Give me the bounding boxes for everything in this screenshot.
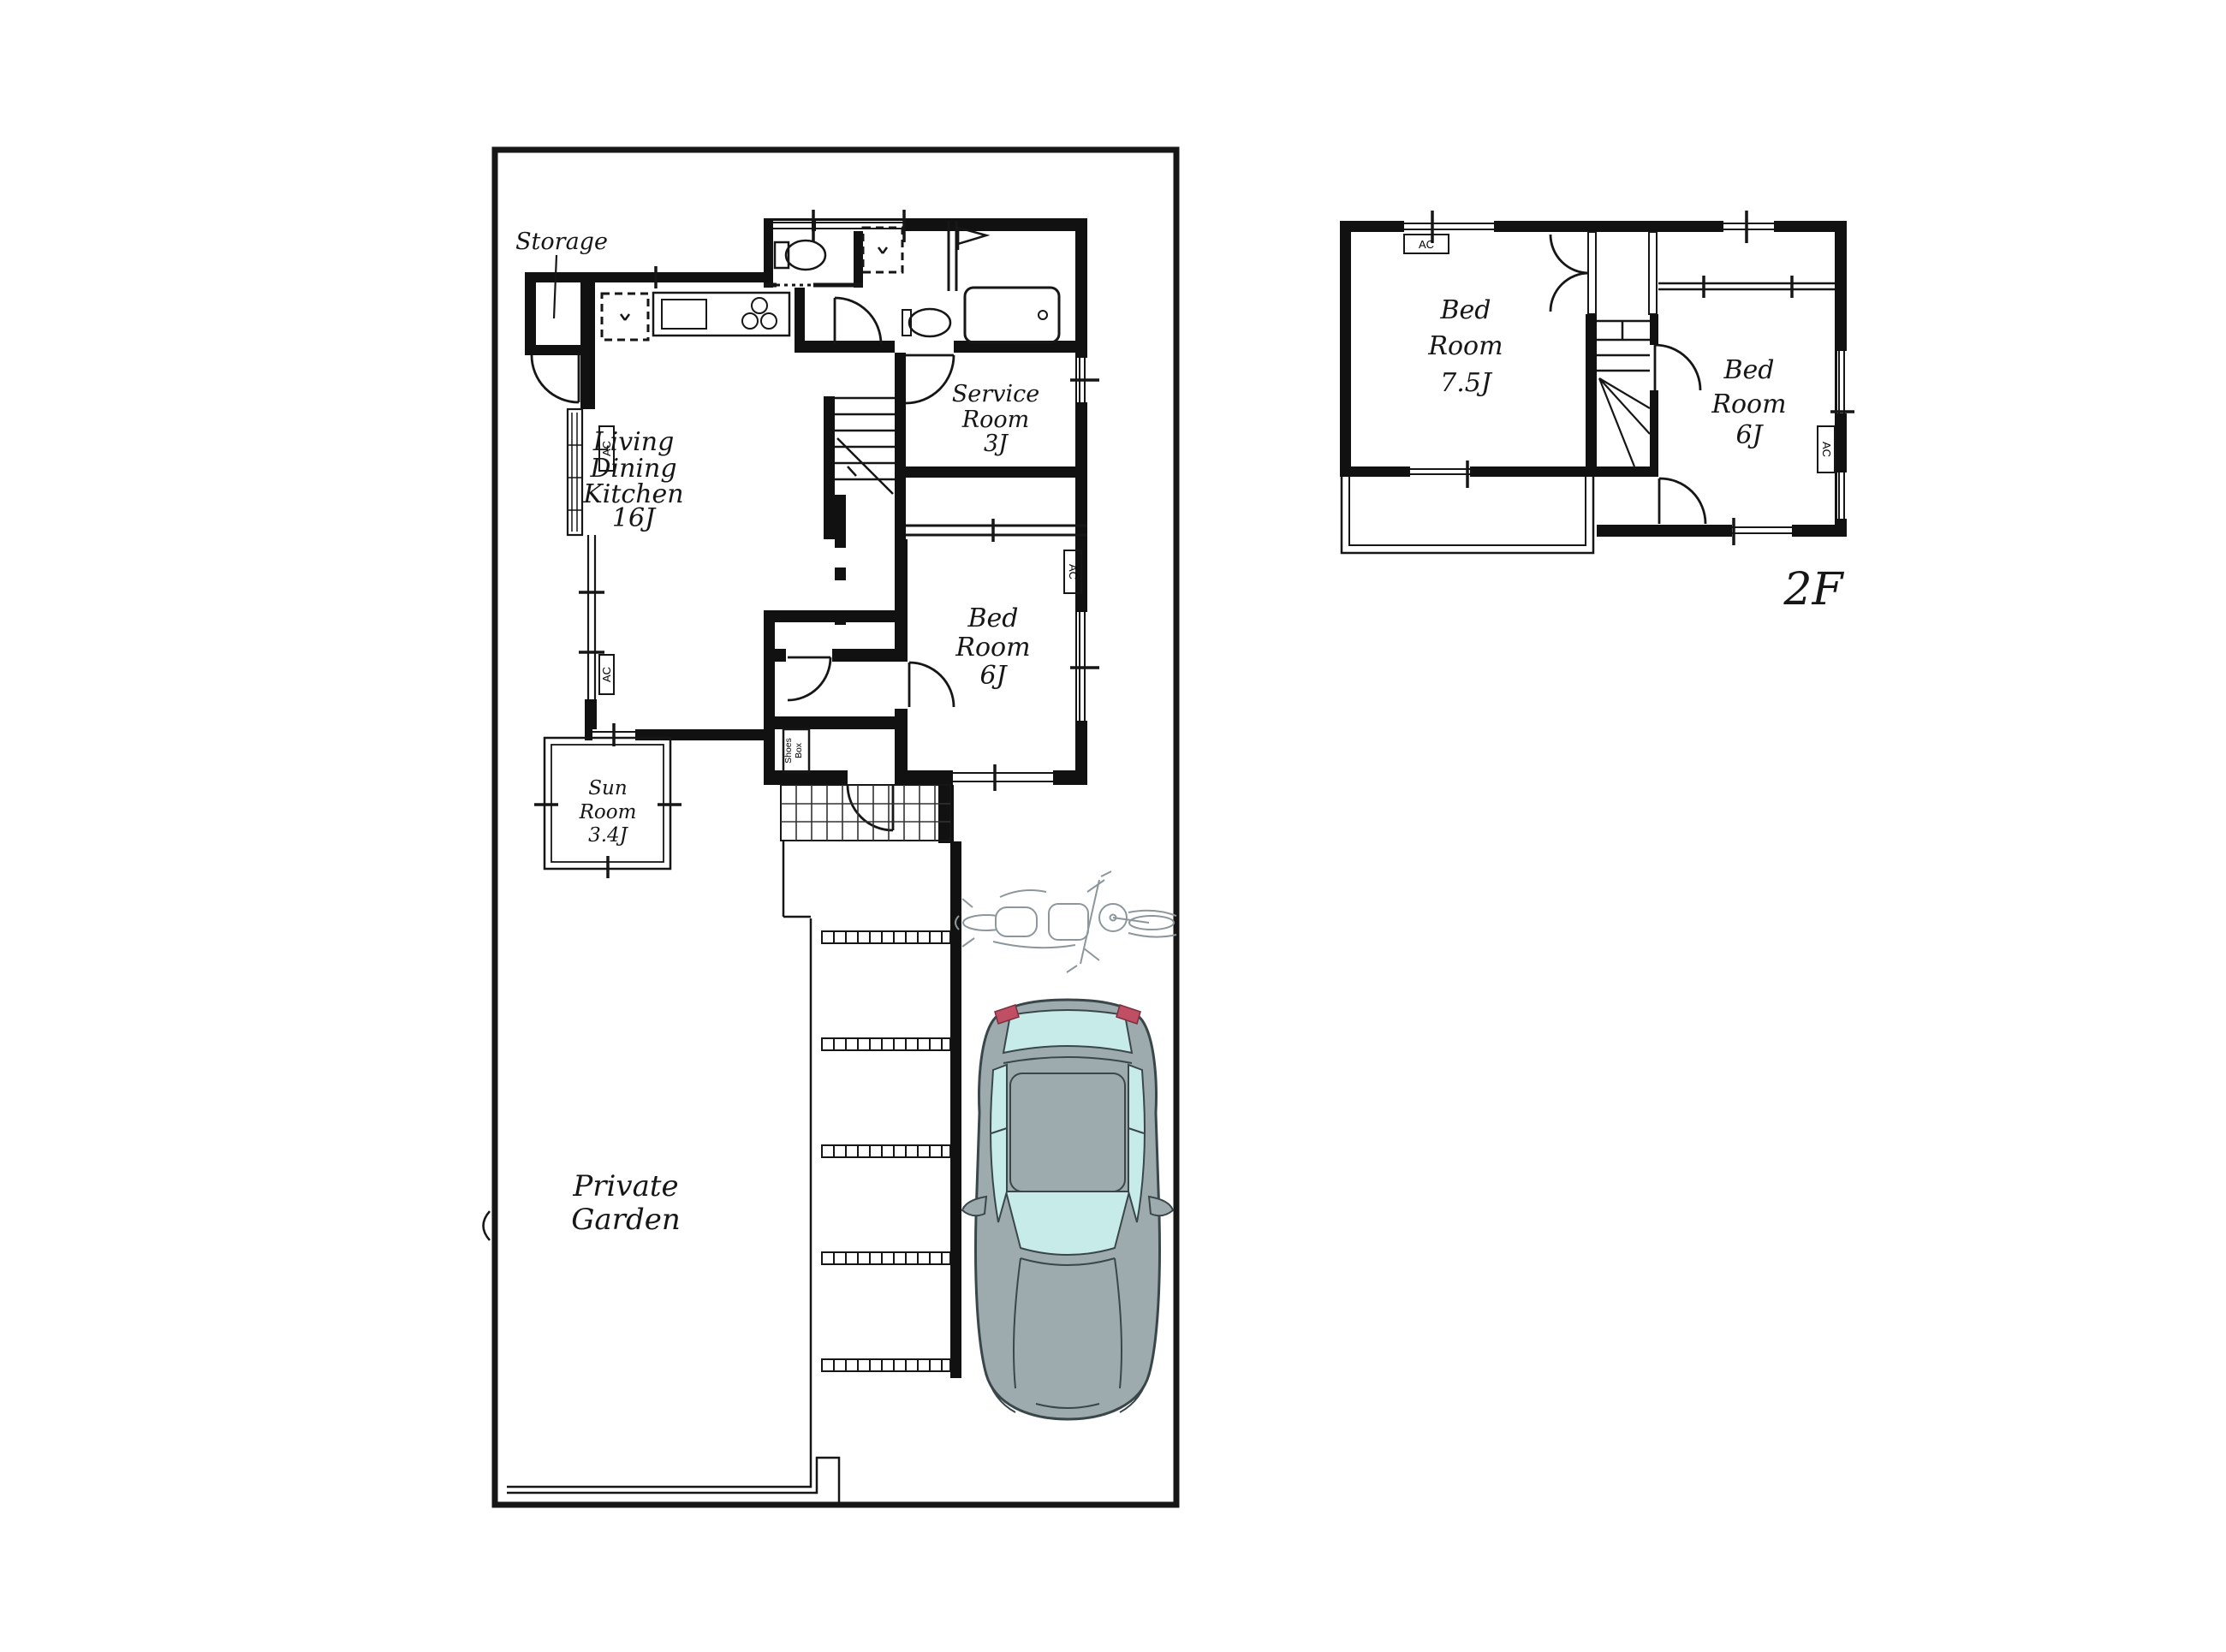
private-garden-label: Garden [571,1203,680,1237]
ac-label: AC [1820,442,1833,457]
bed-room-6-label: Room [1711,389,1786,419]
bed-room-label: 6J [979,661,1008,691]
step-strip [822,1252,950,1264]
porch-side-wall [938,783,954,843]
service-room-label: Service [952,381,1039,407]
toilet [775,241,825,270]
storage-door [532,355,579,402]
floor-2f-label: 2F [1783,564,1844,615]
ldk-label: 16J [612,503,657,533]
step-strip [822,1359,950,1371]
service-room-label: 3J [984,431,1009,457]
doors-2f [1550,235,1705,524]
ac-label: AC [1067,564,1080,579]
bed-room-6-label: Bed [1723,355,1774,385]
sun-room: Sun Room 3.4J [534,738,681,878]
car-mirror-right [1149,1197,1173,1215]
washbasin [902,309,950,336]
ac-label: AC [1419,238,1434,251]
bay-window [568,409,582,535]
ac-label: AC [600,667,613,682]
step-strip [822,931,950,943]
car-illustration [962,1000,1173,1419]
step-strip [822,1145,950,1157]
balcony [1342,477,1593,553]
service-room-label: Room [961,407,1029,433]
car-rear-window [1003,1010,1132,1053]
labels-2f: Bed Room 7.5J Bed Room 6J 2F [1427,295,1844,615]
bedroom-6-door-lower [1659,478,1705,524]
sun-room-label: 3.4J [588,824,629,847]
step-strip [822,1038,950,1050]
bed-room-label: Room [955,633,1030,663]
kitchen-counter [653,293,789,336]
bed-room-label: Bed [967,603,1018,633]
gate-arc-mark [484,1211,491,1240]
washer-space [863,228,902,272]
bed-room-75-label: Bed [1439,295,1491,325]
bedroom-75-doors [1550,235,1589,312]
shoes-box-label: Shoes [783,738,794,764]
service-room-door [906,355,954,403]
sun-room-label: Room [579,801,637,823]
bed-room-75-label: Room [1427,331,1503,361]
site-plan-1f: Sun Room 3.4J [484,150,1177,1505]
entrance-door [848,785,893,830]
shoes-box-label: Box [794,742,804,758]
motorcycle-sketch [955,871,1176,972]
private-garden-label: Private [572,1169,678,1203]
car-roof [1010,1073,1125,1191]
hall-door [788,657,830,700]
car-windshield [1006,1191,1129,1255]
storage-label: Storage [515,229,608,255]
stairs-2f [1597,321,1650,466]
genkan-tile [781,785,950,841]
plan-2f: AC AC Bed Room 7.5J Bed Room 6J 2F [1340,211,1854,615]
floor-plan-page: Sun Room 3.4J [0,0,2226,1652]
bathtub [965,288,1059,342]
washroom-door [835,298,881,344]
fridge-space [602,294,648,340]
stairs-1f [835,398,895,494]
shoes-box: Shoes Box [783,729,809,772]
bedroom-door [909,663,954,707]
storage-leader [554,255,556,318]
approach-steps [822,931,950,1371]
car-mirror-left [962,1197,986,1215]
bedroom-6-door-upper [1655,345,1700,390]
bed-room-6-label: 6J [1735,420,1764,450]
ldk-label: Living [592,427,675,457]
sun-room-label: Sun [588,777,627,799]
bed-room-75-label: 7.5J [1440,368,1493,398]
